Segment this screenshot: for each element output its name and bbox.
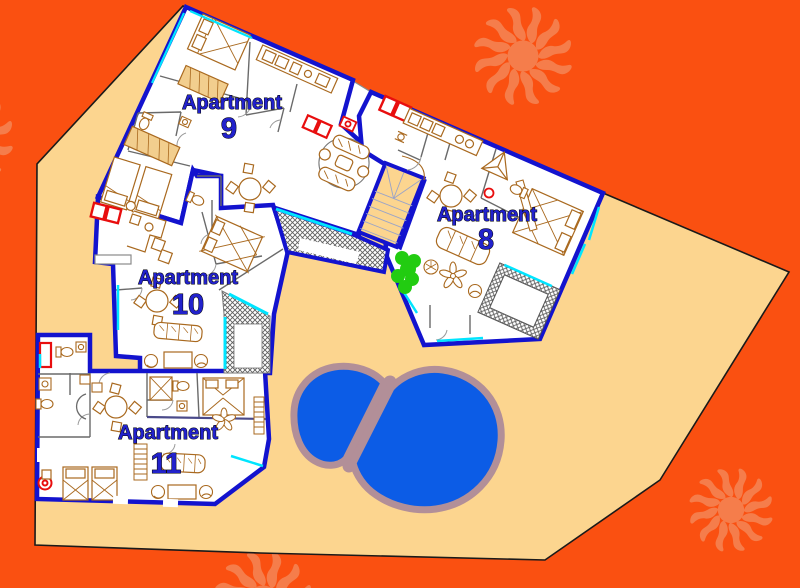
svg-text:Apartment: Apartment [437, 204, 537, 226]
svg-text:8: 8 [478, 224, 494, 256]
svg-text:11: 11 [151, 448, 182, 480]
svg-text:Apartment: Apartment [118, 422, 218, 444]
svg-text:9: 9 [221, 113, 237, 145]
svg-text:Apartment: Apartment [138, 267, 238, 289]
svg-text:10: 10 [172, 289, 204, 321]
svg-text:Apartment: Apartment [182, 92, 282, 114]
